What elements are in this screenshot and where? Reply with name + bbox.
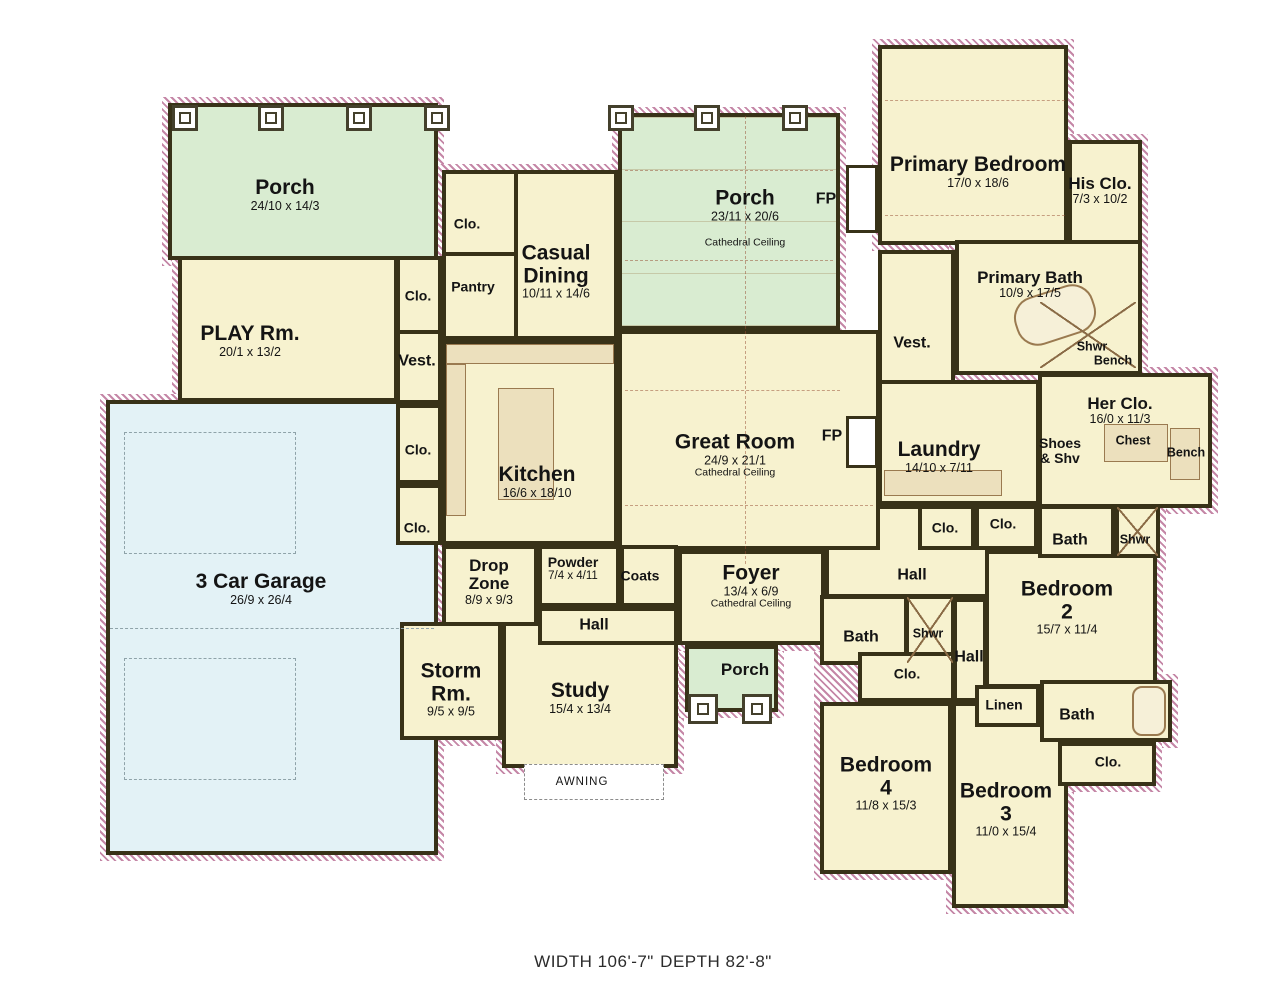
room-name: Shwr <box>1120 533 1151 547</box>
room-name: Shwr <box>1077 340 1108 354</box>
ceiling-line <box>625 390 840 391</box>
room-name: Casual Dining <box>510 243 602 288</box>
label-clo-play: Clo. <box>405 288 431 303</box>
room-dims: 26/9 x 26/4 <box>196 594 327 608</box>
room-name: Porch <box>251 177 320 200</box>
room-dims: 9/5 x 9/5 <box>415 706 487 720</box>
room-name: His Clo. <box>1068 175 1131 193</box>
garage-bay-outline <box>124 658 296 780</box>
label-hall-vertical: Hall <box>954 648 983 665</box>
room-name: AWNING <box>556 776 609 788</box>
room-number: 4 <box>840 777 932 800</box>
room-name: PLAY Rm. <box>200 323 299 346</box>
room-dims: 10/11 x 14/6 <box>510 288 602 302</box>
fireplace-porch <box>846 165 878 233</box>
label-vest-right: Vest. <box>893 334 930 351</box>
room-name: Bench <box>1094 354 1132 368</box>
room-dims: 7/4 x 4/11 <box>548 570 599 582</box>
room-name: FP <box>816 190 836 207</box>
room-name: Shwr <box>913 627 944 641</box>
fireplace-great-room <box>846 416 878 468</box>
room-name: Coats <box>621 568 660 583</box>
label-vest-left: Vest. <box>398 352 435 369</box>
room-name: Great Room <box>675 431 795 454</box>
room-name: Clo. <box>932 520 958 535</box>
label-clo-bed4: Clo. <box>894 666 920 681</box>
room-dims: 17/0 x 18/6 <box>890 177 1066 191</box>
label-study: Study 15/4 x 13/4 <box>549 680 611 716</box>
room-dims: 11/0 x 15/4 <box>960 826 1052 840</box>
floor-plan: Porch 24/10 x 14/3 PLAY Rm. 20/1 x 13/2 … <box>0 0 1280 997</box>
label-kitchen: Kitchen 16/6 x 18/10 <box>498 464 575 500</box>
room-name: Bath <box>843 628 879 645</box>
label-great-room: Great Room 24/9 x 21/1 Cathedral Ceiling <box>675 431 795 479</box>
room-dims: 20/1 x 13/2 <box>200 346 299 360</box>
room-name: 3 Car Garage <box>196 571 327 594</box>
room-dims: 14/10 x 7/11 <box>898 462 981 476</box>
porch-column <box>688 694 718 724</box>
room-name: Her Clo. <box>1087 395 1152 413</box>
room-note: Cathedral Ceiling <box>675 467 795 478</box>
room-name: Clo. <box>1095 754 1121 769</box>
label-her-clo: Her Clo. 16/0 x 11/3 <box>1087 395 1152 427</box>
room-name: Clo. <box>454 216 480 231</box>
room-name: Clo. <box>405 288 431 303</box>
label-hall-bedrooms: Hall <box>897 566 926 583</box>
label-bedroom-4: Bedroom 4 11/8 x 15/3 <box>840 755 932 814</box>
label-pantry: Pantry <box>451 279 495 294</box>
room-name: Shoes & Shv <box>1033 436 1087 466</box>
label-clo-hall-1: Clo. <box>932 520 958 535</box>
room-name: Hall <box>579 616 608 633</box>
label-storm-rm: Storm Rm. 9/5 x 9/5 <box>415 661 487 720</box>
bath-tub <box>1132 686 1166 736</box>
room-name: Vest. <box>398 352 435 369</box>
label-laundry: Laundry 14/10 x 7/11 <box>898 439 981 475</box>
label-fp-great: FP <box>822 427 842 444</box>
label-clo-hall-2: Clo. <box>990 516 1016 531</box>
room-dims: 13/4 x 6/9 <box>711 585 792 599</box>
room-name: Pantry <box>451 279 495 294</box>
room-name: Foyer <box>711 562 792 585</box>
label-bath-her-hall: Bath <box>1052 531 1088 548</box>
label-garage: 3 Car Garage 26/9 x 26/4 <box>196 571 327 607</box>
label-clo-kitchen-2: Clo. <box>404 520 430 535</box>
label-primary-bath: Primary Bath 10/9 x 17/5 <box>977 269 1083 301</box>
room-name: Vest. <box>893 334 930 351</box>
room-dims: 15/7 x 11/4 <box>1021 624 1113 638</box>
room-dims: 10/9 x 17/5 <box>977 287 1083 301</box>
room-name: Clo. <box>990 516 1016 531</box>
ceiling-line <box>625 505 873 506</box>
porch-column <box>346 105 372 131</box>
room-name: Clo. <box>894 666 920 681</box>
label-porch-front: Porch <box>721 661 769 679</box>
label-bath-bed4: Bath <box>843 628 879 645</box>
garage-bay-outline <box>124 432 296 554</box>
kitchen-counter <box>446 364 466 516</box>
room-name: Primary Bath <box>977 269 1083 287</box>
label-shwr-bed4: Shwr <box>913 627 944 641</box>
ceiling-line <box>625 260 833 261</box>
room-dims: 24/10 x 14/3 <box>251 200 320 214</box>
room-name: Porch <box>705 187 786 210</box>
label-casual-dining: Casual Dining 10/11 x 14/6 <box>510 243 602 302</box>
room-name: Bench <box>1167 446 1205 460</box>
ceiling-line <box>885 100 1065 101</box>
room-number: 3 <box>960 803 1052 826</box>
label-shwr-her-hall: Shwr <box>1120 533 1151 547</box>
label-porch-rear-center: Porch 23/11 x 20/6 Cathedral Ceiling <box>705 187 786 249</box>
room-name: Porch <box>721 661 769 679</box>
room-dims: 23/11 x 20/6 <box>705 210 786 224</box>
room-pantry <box>442 252 518 340</box>
room-dims: 8/9 x 9/3 <box>458 594 520 608</box>
label-play-rm: PLAY Rm. 20/1 x 13/2 <box>200 323 299 359</box>
porch-column <box>782 105 808 131</box>
label-bedroom-2: Bedroom 2 15/7 x 11/4 <box>1021 579 1113 638</box>
room-name: Storm Rm. <box>415 661 487 706</box>
room-dims: 11/8 x 15/3 <box>840 800 932 814</box>
plan-depth-text: DEPTH 82'-8" <box>660 952 772 972</box>
kitchen-counter <box>446 344 614 364</box>
label-foyer: Foyer 13/4 x 6/9 Cathedral Ceiling <box>711 562 792 610</box>
label-drop-zone: Drop Zone 8/9 x 9/3 <box>458 557 520 607</box>
room-name: Clo. <box>404 520 430 535</box>
room-name: Powder <box>548 555 599 570</box>
porch-column <box>172 105 198 131</box>
room-dims: 16/6 x 18/10 <box>498 487 575 501</box>
room-name: Bedroom <box>1021 579 1113 602</box>
room-name: Laundry <box>898 439 981 462</box>
room-vest-right <box>878 250 955 397</box>
label-shwr-primary: Shwr <box>1077 340 1108 354</box>
room-clo-kitchen-2 <box>396 484 442 545</box>
label-primary-bedroom: Primary Bedroom 17/0 x 18/6 <box>890 154 1066 190</box>
label-shoes-shv: Shoes & Shv <box>1033 436 1087 466</box>
label-his-clo: His Clo. 7/3 x 10/2 <box>1068 175 1131 207</box>
room-name: Kitchen <box>498 464 575 487</box>
label-clo-dining: Clo. <box>454 216 480 231</box>
garage-divider-line <box>110 628 434 629</box>
label-bedroom-3: Bedroom 3 11/0 x 15/4 <box>960 781 1052 840</box>
porch-column <box>608 105 634 131</box>
room-name: Bedroom <box>840 755 932 778</box>
ceiling-line <box>625 170 833 171</box>
room-name: Bath <box>1059 706 1095 723</box>
room-number: 2 <box>1021 601 1113 624</box>
label-powder: Powder 7/4 x 4/11 <box>548 555 599 583</box>
room-clo-dining <box>442 170 518 256</box>
room-name: Linen <box>985 697 1022 712</box>
room-note: Cathedral Ceiling <box>705 237 786 248</box>
room-name: Bath <box>1052 531 1088 548</box>
room-name: Hall <box>897 566 926 583</box>
plan-width-text: WIDTH 106'-7" <box>534 952 654 972</box>
room-name: Hall <box>954 648 983 665</box>
label-bench-primary: Bench <box>1094 354 1132 368</box>
ceiling-ridge-line <box>745 116 746 564</box>
label-clo-kitchen-1: Clo. <box>405 442 431 457</box>
room-name: Bedroom <box>960 781 1052 804</box>
room-name: Clo. <box>405 442 431 457</box>
label-bath-beds23: Bath <box>1059 706 1095 723</box>
porch-column <box>424 105 450 131</box>
label-coats: Coats <box>621 568 660 583</box>
label-hall-center: Hall <box>579 616 608 633</box>
label-fp-porch: FP <box>816 190 836 207</box>
porch-column <box>694 105 720 131</box>
porch-column <box>742 694 772 724</box>
label-chest: Chest <box>1116 434 1151 448</box>
room-dims: 15/4 x 13/4 <box>549 703 611 717</box>
room-name: Primary Bedroom <box>890 154 1066 177</box>
room-name: Chest <box>1116 434 1151 448</box>
room-name: FP <box>822 427 842 444</box>
label-linen: Linen <box>985 697 1022 712</box>
room-dims: 7/3 x 10/2 <box>1068 193 1131 207</box>
ceiling-line <box>885 215 1065 216</box>
room-name: Study <box>549 680 611 703</box>
room-name: Drop Zone <box>458 557 520 594</box>
room-dims: 16/0 x 11/3 <box>1087 413 1152 427</box>
porch-column <box>258 105 284 131</box>
room-dims: 24/9 x 21/1 <box>675 454 795 468</box>
label-porch-rear-left: Porch 24/10 x 14/3 <box>251 177 320 213</box>
label-awning: AWNING <box>556 776 609 788</box>
label-clo-bed3: Clo. <box>1095 754 1121 769</box>
room-note: Cathedral Ceiling <box>711 598 792 609</box>
label-bench-her: Bench <box>1167 446 1205 460</box>
